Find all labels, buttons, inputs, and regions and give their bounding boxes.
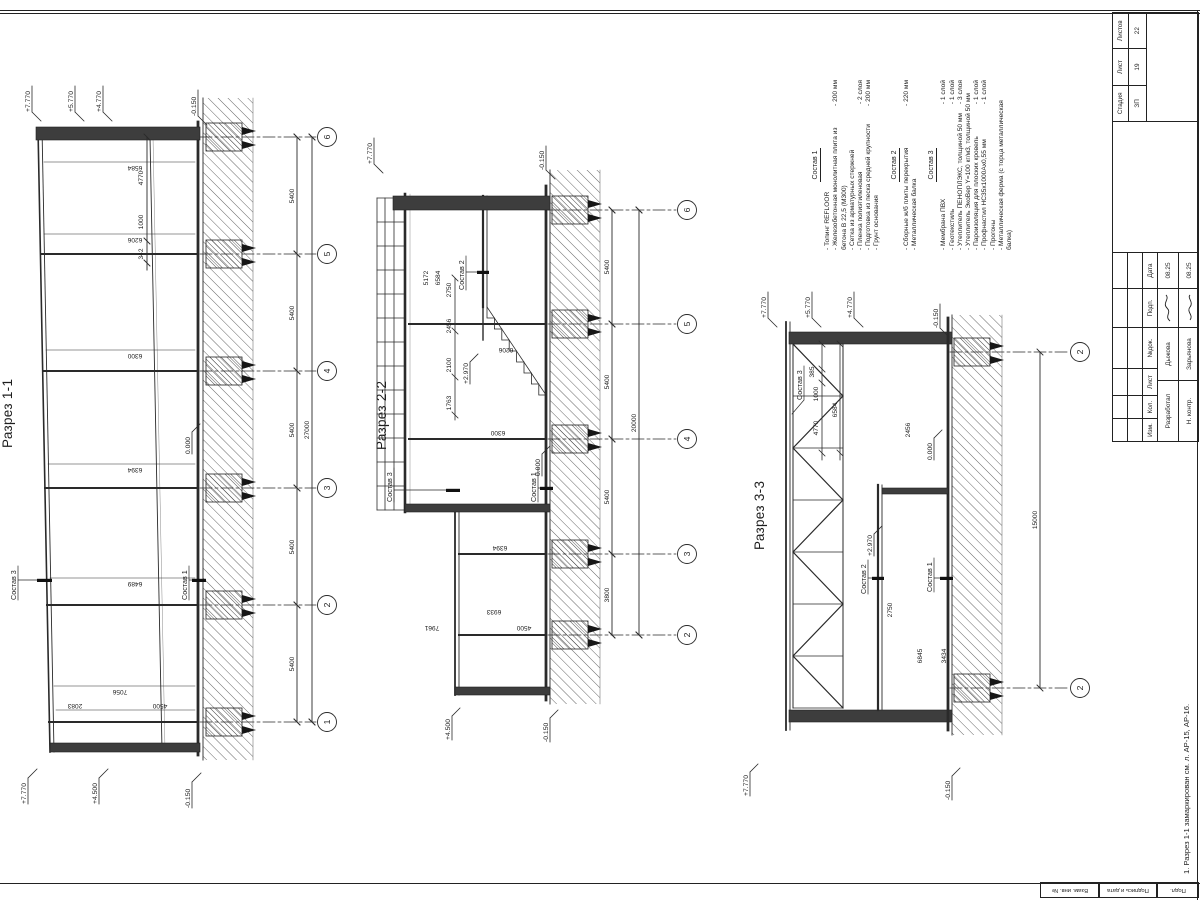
section-3-3: Разрез 3-3 (743, 292, 1090, 800)
dim-text: 5400 (289, 422, 296, 437)
makeup-labels: Состав 3 Состав 1 (9, 566, 206, 600)
stairs (483, 307, 546, 395)
ground-hatch (952, 315, 1002, 735)
dim-text: 6845 (917, 648, 924, 663)
note-item: - Геотекстиль (949, 107, 957, 250)
frame-right (0, 13, 1200, 14)
role: Н. контр. (1179, 380, 1199, 441)
note-item: - Утеплитель ПЕНОПЛЭКС, толщиной 50 мм (957, 107, 965, 250)
axis-label: 2 (682, 632, 692, 637)
dim-text: 1000 (138, 214, 145, 229)
label: Состав 1 (180, 570, 189, 600)
title-block-stage: Стадия Лист Листов ЗП 19 22 (1113, 13, 1198, 121)
name: Дыжова (1158, 327, 1178, 380)
elevation: +4.500 (445, 719, 452, 740)
elevation: +2.970 (463, 363, 470, 384)
dim-text: 20000 (631, 414, 638, 433)
dim-text: 5400 (604, 259, 611, 274)
elevation: +7.770 (367, 143, 374, 164)
elevation: -0.150 (191, 97, 198, 116)
left-wall (50, 743, 200, 752)
right-wall (36, 127, 200, 140)
dim-text: 7961 (424, 624, 439, 631)
dim-text: 3800 (604, 587, 611, 602)
note-item: - Металлическая ферма (с торца металличе… (998, 83, 1014, 250)
notes-header: Состав 1 (812, 148, 821, 181)
ground-hatch (203, 98, 253, 760)
notes-group-3: Состав 3 - Мембрана ПВХ- 1 слой - Геотек… (928, 80, 1014, 250)
axis-label: 2 (1075, 349, 1085, 354)
col-ndok: №док. (1143, 327, 1157, 368)
elevation: 0.000 (927, 443, 934, 460)
note-item: - Сетка из арматурных стержней (849, 83, 857, 250)
note-item: - Железобетонная монолитная плита из бет… (832, 109, 848, 250)
dim-text: 15000 (1032, 511, 1039, 530)
elevation: -0.150 (543, 723, 550, 742)
dim-text: 385 (809, 366, 816, 377)
dim-text: 2100 (446, 357, 453, 372)
axis-label: 5 (682, 321, 692, 326)
sheets-label: Листов (1113, 13, 1128, 48)
elevation: +7.770 (761, 297, 768, 318)
axis-label: 2 (1075, 685, 1085, 690)
dim-text: 4500 (516, 624, 531, 631)
railing (377, 198, 405, 510)
axis-bubbles: 2 2 (1071, 343, 1090, 698)
signature (1158, 288, 1178, 327)
dim-text: 2750 (887, 602, 894, 617)
axis-label: 6 (322, 134, 332, 139)
dim-text: 5172 (423, 270, 430, 285)
note-item: - Пленка полиэтиленовая (857, 107, 865, 250)
axis-label: 1 (322, 719, 332, 724)
notes-header: Состав 3 (928, 148, 937, 181)
dim-text: 6489 (127, 580, 142, 587)
dim-text: 5400 (289, 305, 296, 320)
dim-text: 6206 (127, 236, 142, 243)
role: Разработал (1158, 380, 1178, 441)
elevation-marks: +7.770 +5.770 +4.770 -0.150 +7.770 -0.15… (743, 292, 960, 800)
elevation: 0.000 (185, 437, 192, 454)
notes-group-1: Состав 1 - Топинг REFLOOR - Железобетонн… (812, 80, 882, 250)
section-title: Разрез 2-2 (374, 381, 389, 450)
dim-text: 342 (138, 248, 145, 259)
label: Состав 3 (9, 570, 18, 600)
dim-text: 3434 (941, 648, 948, 663)
material-notes: Состав 1 - Топинг REFLOOR - Железобетонн… (812, 80, 1023, 250)
axis-label: 4 (682, 436, 692, 441)
frame-right-outer (0, 10, 1200, 11)
col-podp: Подп. (1143, 288, 1157, 327)
dim-text: 6394 (492, 544, 507, 551)
date: 08.25 (1158, 253, 1178, 288)
dim-text: 6584 (127, 164, 142, 171)
axis-label: 6 (682, 207, 692, 212)
note-item: - Мембрана ПВХ (940, 107, 948, 250)
section-2-2: Разрез 2-2 (367, 138, 697, 742)
label: Состав 2 (859, 564, 868, 594)
date: 08.25 (1179, 253, 1199, 288)
elevation: +7.770 (21, 783, 28, 804)
elevation: +5.770 (68, 91, 75, 112)
frame-bottom (1197, 10, 1198, 900)
name: Зарьянова (1179, 327, 1199, 380)
dim-text: 1763 (446, 395, 453, 410)
drawing-sheet: Разрез 1-1 (0, 0, 1200, 900)
elevation: -0.150 (945, 781, 952, 800)
dim-text: 5400 (289, 188, 296, 203)
col-izm: Изм. (1143, 418, 1157, 441)
elevation: +4.770 (96, 91, 103, 112)
title-block: Изм. Кол. Лист №док. Подп. Дата Разработ… (1112, 12, 1199, 442)
sheet-label: Лист (1113, 48, 1128, 84)
dim-text: 27000 (304, 421, 311, 440)
col-kol: Кол. (1143, 395, 1157, 418)
section-1-1: Разрез 1-1 (0, 86, 337, 808)
elevation: -0.150 (933, 309, 940, 328)
stage-label: Стадия (1113, 85, 1128, 121)
col-data: Дата (1143, 253, 1157, 288)
margin-box-podpis: Подпись и дата (1098, 882, 1158, 898)
dim-text: 6394 (127, 466, 142, 473)
elevation: +4.770 (847, 297, 854, 318)
elevation: +7.770 (25, 91, 32, 112)
dim-text: 6584 (832, 402, 839, 417)
title-block-name-cell (1113, 121, 1198, 252)
dim-text: 6300 (490, 429, 505, 436)
dim-text: 2456 (905, 422, 912, 437)
dim-text: 1000 (813, 386, 820, 401)
title-block-change-table: Изм. Кол. Лист №док. Подп. Дата Разработ… (1113, 252, 1198, 441)
dim-text: 5400 (604, 489, 611, 504)
footnote: 1. Разрез 1-1 замаркирован см. л. АР-15,… (1182, 704, 1191, 874)
stage-value: ЗП (1129, 85, 1146, 121)
margin-box-vzam: Взам. инв. № (1040, 882, 1100, 898)
axis-label: 5 (322, 251, 332, 256)
frame-left (0, 883, 1200, 884)
notes-header: Состав 2 (891, 148, 900, 181)
elevation: +4.500 (92, 783, 99, 804)
sheets-total: 22 (1129, 13, 1146, 48)
note-item: - Профнастил НС35х1000Ах0,55 мм (981, 107, 989, 250)
elevation: +7.770 (743, 775, 750, 796)
note-item: - Утеплитель ЭкоВер Y=100 кг/м3, толщино… (965, 83, 973, 250)
dim-text: 2456 (446, 318, 453, 333)
drawing-viewport: Разрез 1-1 (0, 0, 1200, 900)
label: Состав 1 (925, 562, 934, 592)
dim-text: 4770 (138, 170, 145, 185)
col-list: Лист (1143, 368, 1157, 395)
note-item: - Прогоны (990, 83, 998, 250)
note-item: - Грунт основания (873, 83, 881, 250)
note-item: - Подготовка из песка средней крупности (865, 109, 873, 250)
label: Состав 1 (529, 472, 538, 502)
elevation: -0.150 (185, 789, 192, 808)
signature (1179, 288, 1199, 327)
section-title: Разрез 1-1 (0, 379, 15, 448)
dim-text: 5400 (289, 656, 296, 671)
dim-text: 2750 (446, 282, 453, 297)
section-title: Разрез 3-3 (752, 481, 767, 550)
axis-label: 3 (322, 485, 332, 490)
dim-text: 6584 (435, 270, 442, 285)
dim-text: 7056 (112, 688, 127, 695)
note-item: - Пароизоляция для плоских кровель (973, 107, 981, 250)
axis-label: 2 (322, 602, 332, 607)
dim-text: 2083 (67, 702, 82, 709)
label: Состав 3 (385, 472, 394, 502)
axis-label: 4 (322, 368, 332, 373)
label: Состав 3 (795, 370, 804, 400)
notes-group-2: Состав 2 - Сборные ж/б плиты перекрытия-… (891, 80, 920, 250)
elevation: +2.970 (867, 535, 874, 556)
dim-text: 6206 (498, 346, 513, 353)
axis-bubbles: 2 3 4 5 6 (678, 201, 697, 645)
margin-box-podl: Подл. (1156, 882, 1199, 898)
note-item: - Сборные ж/б плиты перекрытия (903, 109, 911, 250)
axis-label: 3 (682, 551, 692, 556)
dim-text: 5400 (289, 539, 296, 554)
note-item: - Металлическая балка (911, 83, 919, 250)
elevation: +5.770 (805, 297, 812, 318)
axis-bubbles: 1 2 3 4 5 6 (318, 128, 337, 732)
dim-text: 4500 (152, 702, 167, 709)
label: Состав 2 (457, 260, 466, 290)
dim-text: 5400 (604, 374, 611, 389)
dim-text: 6300 (127, 352, 142, 359)
dim-text: 6933 (486, 608, 501, 615)
sheet-number: 19 (1129, 48, 1146, 84)
dim-text: 4770 (813, 420, 820, 435)
elevation: -0.150 (539, 151, 546, 170)
